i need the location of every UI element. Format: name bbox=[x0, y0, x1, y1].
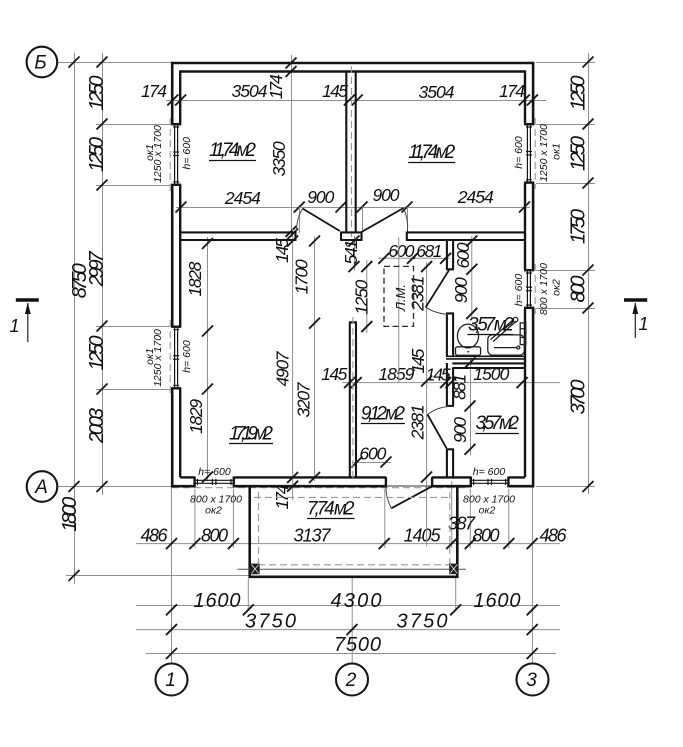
svg-text:ок1: ок1 bbox=[551, 143, 563, 160]
svg-text:h= 600: h= 600 bbox=[181, 137, 193, 170]
svg-text:3350: 3350 bbox=[269, 141, 289, 176]
svg-text:800: 800 bbox=[201, 526, 228, 546]
svg-text:900: 900 bbox=[451, 277, 471, 303]
svg-text:1250: 1250 bbox=[86, 76, 108, 111]
svg-text:1250: 1250 bbox=[568, 76, 590, 111]
svg-text:1250: 1250 bbox=[352, 280, 372, 315]
svg-text:2381: 2381 bbox=[408, 276, 428, 312]
svg-text:1829: 1829 bbox=[186, 399, 206, 434]
svg-text:Б: Б bbox=[34, 53, 46, 74]
svg-text:3137: 3137 bbox=[294, 526, 332, 546]
svg-text:800: 800 bbox=[473, 526, 500, 546]
svg-text:2997: 2997 bbox=[86, 251, 108, 288]
svg-text:4907: 4907 bbox=[273, 350, 293, 386]
svg-text:1: 1 bbox=[638, 314, 648, 334]
svg-text:3,57 м2: 3,57 м2 bbox=[468, 315, 514, 336]
svg-text:1: 1 bbox=[165, 670, 176, 691]
svg-text:174: 174 bbox=[499, 81, 525, 101]
svg-text:486: 486 bbox=[540, 526, 568, 546]
svg-text:145: 145 bbox=[272, 238, 292, 263]
svg-text:h= 600: h= 600 bbox=[513, 274, 525, 307]
svg-text:2454: 2454 bbox=[224, 188, 261, 208]
svg-text:1600: 1600 bbox=[194, 590, 241, 612]
svg-text:Л.М.: Л.М. bbox=[393, 284, 408, 312]
svg-text:2454: 2454 bbox=[457, 187, 494, 207]
svg-text:1800: 1800 bbox=[59, 497, 81, 532]
svg-text:1250: 1250 bbox=[86, 336, 108, 371]
svg-text:486: 486 bbox=[141, 526, 169, 546]
svg-text:2003: 2003 bbox=[86, 408, 108, 444]
svg-text:600: 600 bbox=[453, 242, 473, 268]
svg-text:17,19 м2: 17,19 м2 bbox=[229, 424, 273, 445]
svg-text:3: 3 bbox=[526, 670, 537, 691]
svg-text:541: 541 bbox=[341, 240, 361, 265]
svg-text:2381: 2381 bbox=[408, 404, 428, 440]
svg-text:h= 600: h= 600 bbox=[473, 466, 506, 478]
svg-text:1405: 1405 bbox=[404, 526, 442, 546]
svg-text:174: 174 bbox=[141, 81, 167, 101]
svg-text:h= 600: h= 600 bbox=[513, 136, 525, 169]
svg-text:ок2: ок2 bbox=[479, 505, 496, 517]
svg-text:3700: 3700 bbox=[568, 380, 590, 415]
svg-text:600: 600 bbox=[359, 444, 386, 464]
svg-text:1: 1 bbox=[9, 316, 19, 336]
svg-text:1700: 1700 bbox=[292, 259, 312, 294]
svg-text:1250 х 1700: 1250 х 1700 bbox=[538, 124, 550, 182]
svg-text:1250 х 1700: 1250 х 1700 bbox=[152, 329, 164, 387]
svg-text:ок2: ок2 bbox=[205, 505, 222, 517]
svg-text:800: 800 bbox=[568, 276, 590, 303]
svg-text:9,12 м2: 9,12 м2 bbox=[361, 404, 405, 425]
svg-text:3504: 3504 bbox=[232, 81, 268, 101]
svg-text:800 х 1700: 800 х 1700 bbox=[538, 263, 550, 315]
svg-text:1600: 1600 bbox=[474, 590, 521, 612]
svg-text:3207: 3207 bbox=[294, 381, 314, 417]
svg-text:2: 2 bbox=[345, 670, 357, 691]
svg-text:145: 145 bbox=[321, 364, 347, 384]
svg-text:1250: 1250 bbox=[568, 136, 590, 171]
svg-text:174: 174 bbox=[266, 74, 286, 99]
svg-text:А: А bbox=[34, 477, 48, 498]
svg-text:1828: 1828 bbox=[185, 261, 205, 296]
svg-text:1250 х 1700: 1250 х 1700 bbox=[152, 125, 164, 183]
svg-text:3,57 м2: 3,57 м2 bbox=[475, 413, 519, 434]
svg-text:7,74 м2: 7,74 м2 bbox=[307, 499, 355, 520]
svg-text:145: 145 bbox=[322, 81, 348, 101]
svg-text:11,74 м2: 11,74 м2 bbox=[408, 142, 455, 163]
svg-text:3504: 3504 bbox=[419, 82, 455, 102]
svg-text:7500: 7500 bbox=[334, 634, 381, 656]
svg-text:900: 900 bbox=[307, 187, 334, 207]
svg-text:600,681: 600,681 bbox=[388, 241, 442, 261]
svg-text:900: 900 bbox=[450, 417, 470, 443]
svg-text:1250: 1250 bbox=[86, 137, 108, 172]
svg-text:ок2: ок2 bbox=[551, 279, 563, 296]
svg-text:11,74 м2: 11,74 м2 bbox=[209, 140, 256, 161]
svg-text:1750: 1750 bbox=[568, 209, 590, 244]
svg-text:h= 600: h= 600 bbox=[181, 340, 193, 373]
svg-text:h= 600: h= 600 bbox=[198, 466, 231, 478]
svg-text:900: 900 bbox=[373, 185, 400, 205]
